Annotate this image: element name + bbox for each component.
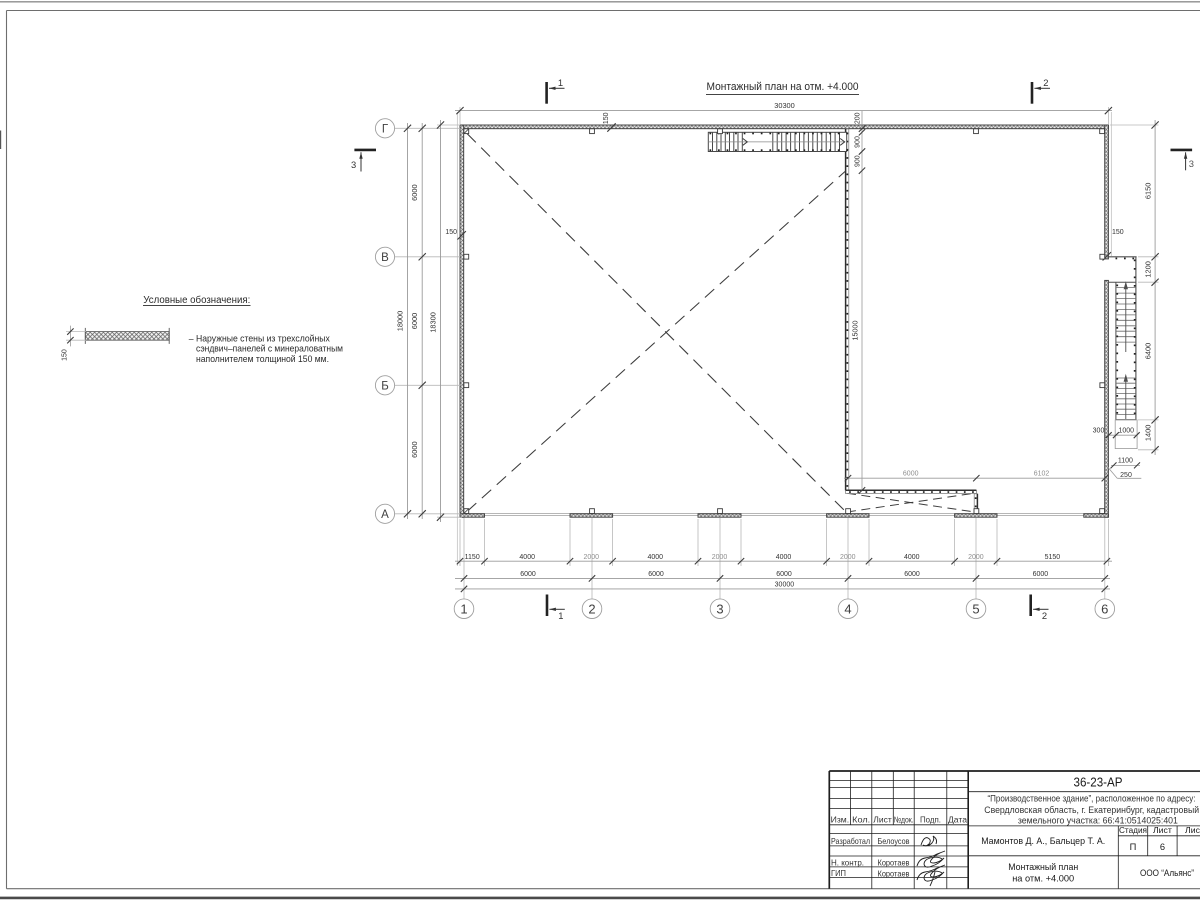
svg-text:30300: 30300: [774, 101, 795, 110]
svg-text:Монтажный план на отм. +4.000: Монтажный план на отм. +4.000: [707, 81, 859, 93]
svg-text:А: А: [381, 509, 389, 521]
svg-text:6000: 6000: [904, 571, 920, 578]
svg-text:Монтажный план: Монтажный план: [1008, 862, 1078, 872]
svg-text:6000: 6000: [1033, 571, 1049, 578]
svg-text:150: 150: [445, 229, 457, 236]
svg-text:3: 3: [351, 159, 356, 170]
svg-text:“Производственное здание”, рас: “Производственное здание”, расположенное…: [988, 794, 1196, 804]
svg-text:1: 1: [460, 601, 467, 616]
svg-text:300: 300: [1093, 428, 1105, 435]
svg-text:2000: 2000: [712, 554, 728, 561]
svg-text:2000: 2000: [840, 554, 856, 561]
svg-text:Б: Б: [381, 380, 389, 392]
svg-text:2000: 2000: [584, 554, 600, 561]
svg-text:30000: 30000: [775, 582, 795, 589]
svg-text:Стадия: Стадия: [1119, 825, 1147, 835]
svg-text:Коротаев: Коротаев: [878, 868, 910, 878]
svg-text:900: 900: [855, 136, 862, 148]
svg-text:Кол.: Кол.: [852, 815, 870, 825]
svg-text:2000: 2000: [968, 554, 984, 561]
svg-text:3: 3: [716, 601, 723, 616]
svg-text:1000: 1000: [1119, 428, 1135, 435]
svg-text:Разработал: Разработал: [831, 836, 870, 846]
svg-text:250: 250: [1120, 472, 1132, 479]
svg-text:земельного участка: 66:41:0514: земельного участка: 66:41:0514025:401: [1018, 815, 1178, 825]
svg-text:6400: 6400: [1143, 343, 1152, 359]
svg-text:5150: 5150: [1045, 554, 1061, 561]
svg-text:1: 1: [558, 610, 563, 621]
svg-text:6150: 6150: [1143, 183, 1152, 199]
svg-text:6000: 6000: [410, 313, 419, 329]
svg-text:наполнителем толщиной 150 мм.: наполнителем толщиной 150 мм.: [196, 353, 329, 364]
svg-text:1200: 1200: [1143, 261, 1152, 277]
svg-text:6: 6: [1160, 842, 1165, 852]
svg-text:18300: 18300: [428, 312, 437, 333]
svg-text:6102: 6102: [1034, 471, 1050, 478]
svg-text:4000: 4000: [519, 554, 535, 561]
svg-text:4000: 4000: [776, 554, 792, 561]
svg-text:2: 2: [1042, 610, 1047, 621]
svg-text:Лист: Лист: [873, 815, 892, 825]
svg-text:1100: 1100: [1118, 457, 1133, 464]
svg-text:Белоусов: Белоусов: [878, 836, 910, 846]
svg-text:2: 2: [588, 601, 595, 616]
svg-text:6000: 6000: [520, 571, 536, 578]
svg-text:Подп.: Подп.: [920, 815, 941, 825]
svg-text:Дата: Дата: [948, 815, 967, 825]
svg-text:4000: 4000: [648, 554, 664, 561]
svg-text:1400: 1400: [1143, 425, 1152, 441]
svg-text:5: 5: [972, 601, 979, 616]
svg-text:ГИП: ГИП: [831, 868, 846, 878]
svg-text:Изм.: Изм.: [831, 815, 850, 825]
svg-text:18000: 18000: [395, 311, 404, 332]
svg-text:200: 200: [855, 112, 862, 124]
svg-text:4: 4: [844, 601, 851, 616]
svg-text:6000: 6000: [648, 571, 664, 578]
svg-text:Лист: Лист: [1153, 825, 1172, 835]
svg-text:№док.: №док.: [894, 815, 914, 825]
svg-text:Условные обозначения:: Условные обозначения:: [143, 294, 250, 306]
svg-text:6000: 6000: [903, 471, 919, 478]
svg-text:Г: Г: [382, 123, 389, 135]
svg-text:1150: 1150: [465, 554, 480, 561]
svg-text:6: 6: [1101, 601, 1108, 616]
svg-text:150: 150: [61, 349, 68, 361]
svg-text:150: 150: [1112, 229, 1124, 236]
svg-text:36-23-АР: 36-23-АР: [1074, 774, 1123, 789]
svg-text:1: 1: [558, 77, 563, 88]
svg-text:на отм. +4.000: на отм. +4.000: [1012, 874, 1074, 884]
svg-text:сэндвич–панелей с минераловатн: сэндвич–панелей с минераловатным: [196, 343, 343, 354]
svg-text:Коротаев: Коротаев: [878, 858, 910, 868]
svg-text:В: В: [381, 252, 389, 264]
svg-text:Н. контр.: Н. контр.: [831, 857, 864, 867]
svg-text:– Наружные стены из трехслойны: – Наружные стены из трехслойных: [189, 332, 330, 343]
svg-text:Лис: Лис: [1185, 825, 1200, 835]
svg-text:ООО “Альянс”: ООО “Альянс”: [1140, 868, 1194, 878]
svg-text:6000: 6000: [776, 571, 792, 578]
svg-text:Свердловская область, г. Екате: Свердловская область, г. Екатеринбург, к…: [984, 805, 1200, 815]
svg-text:900: 900: [855, 155, 862, 167]
svg-text:150: 150: [603, 112, 610, 124]
svg-text:6000: 6000: [410, 184, 419, 200]
svg-text:6000: 6000: [410, 441, 419, 457]
svg-text:15000: 15000: [851, 321, 860, 341]
svg-text:3: 3: [1189, 158, 1194, 169]
svg-text:П: П: [1130, 842, 1137, 852]
svg-text:2: 2: [1043, 77, 1048, 88]
svg-text:4000: 4000: [904, 554, 920, 561]
svg-text:Мамонтов Д. А., Бальцер Т. А.: Мамонтов Д. А., Бальцер Т. А.: [981, 836, 1105, 846]
